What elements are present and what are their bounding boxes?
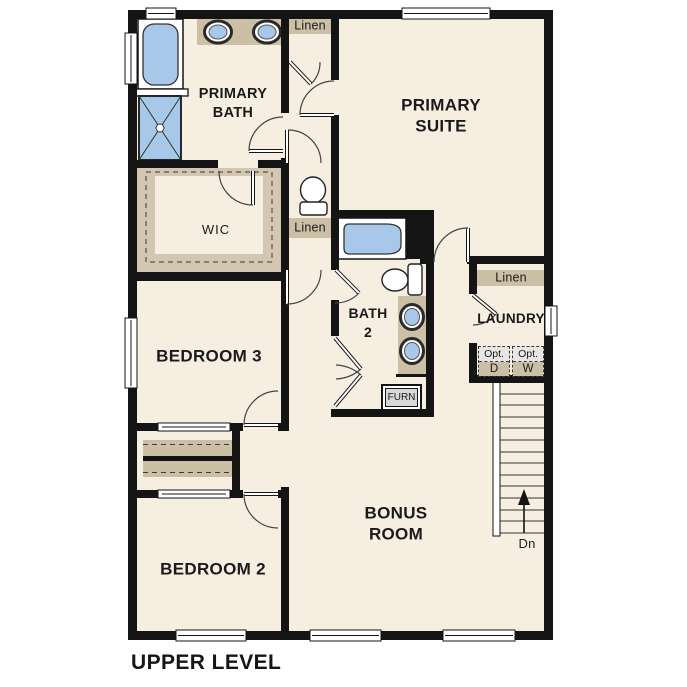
optional-washer-letter: W xyxy=(513,362,543,376)
optional-dryer-label: Opt. xyxy=(479,347,509,362)
window xyxy=(545,306,557,336)
closet-label-linen-top: Linen xyxy=(294,18,326,33)
bath2-bathtub xyxy=(338,218,428,259)
wic-shelving xyxy=(137,168,281,272)
room-label-bedroom2: BEDROOM 2 xyxy=(160,560,266,581)
primary-bathtub xyxy=(134,19,188,96)
room-label-bath2: BATH 2 xyxy=(348,304,387,342)
closet-label-linen-laundry: Linen xyxy=(495,270,527,285)
closet-shelving xyxy=(143,440,232,477)
furnace-unit: FURN xyxy=(381,384,422,411)
stairs-down-label: Dn xyxy=(518,536,535,552)
optional-washer-label: Opt. xyxy=(513,347,543,362)
window xyxy=(125,33,137,84)
room-label-laundry: LAUNDRY xyxy=(477,311,545,327)
window xyxy=(125,318,137,388)
water-closet-toilet xyxy=(300,177,327,215)
bypass-closet-door xyxy=(158,490,230,498)
window xyxy=(146,8,176,19)
window xyxy=(310,630,381,641)
closet-label-linen-hall: Linen xyxy=(294,220,326,235)
window xyxy=(402,8,490,19)
floorplan-drawing xyxy=(0,0,687,687)
furnace-label: FURN xyxy=(385,388,418,407)
room-label-primary-suite: PRIMARY SUITE xyxy=(401,95,481,136)
optional-washer-box: Opt. W xyxy=(512,346,544,377)
floorplan-upper-level: PRIMARY BATH PRIMARY SUITE WIC BEDROOM 3… xyxy=(0,0,687,687)
room-label-primary-bath: PRIMARY BATH xyxy=(199,85,267,123)
optional-dryer-letter: D xyxy=(479,362,509,376)
room-label-bedroom3: BEDROOM 3 xyxy=(156,347,262,368)
room-label-bonus-room: BONUS ROOM xyxy=(365,503,428,544)
window xyxy=(176,630,246,641)
room-label-wic: WIC xyxy=(202,222,230,238)
window xyxy=(443,630,515,641)
shower-stall xyxy=(139,96,181,160)
optional-dryer-box: Opt. D xyxy=(478,346,510,377)
bypass-closet-door xyxy=(158,423,230,431)
plan-title: UPPER LEVEL xyxy=(131,651,281,675)
